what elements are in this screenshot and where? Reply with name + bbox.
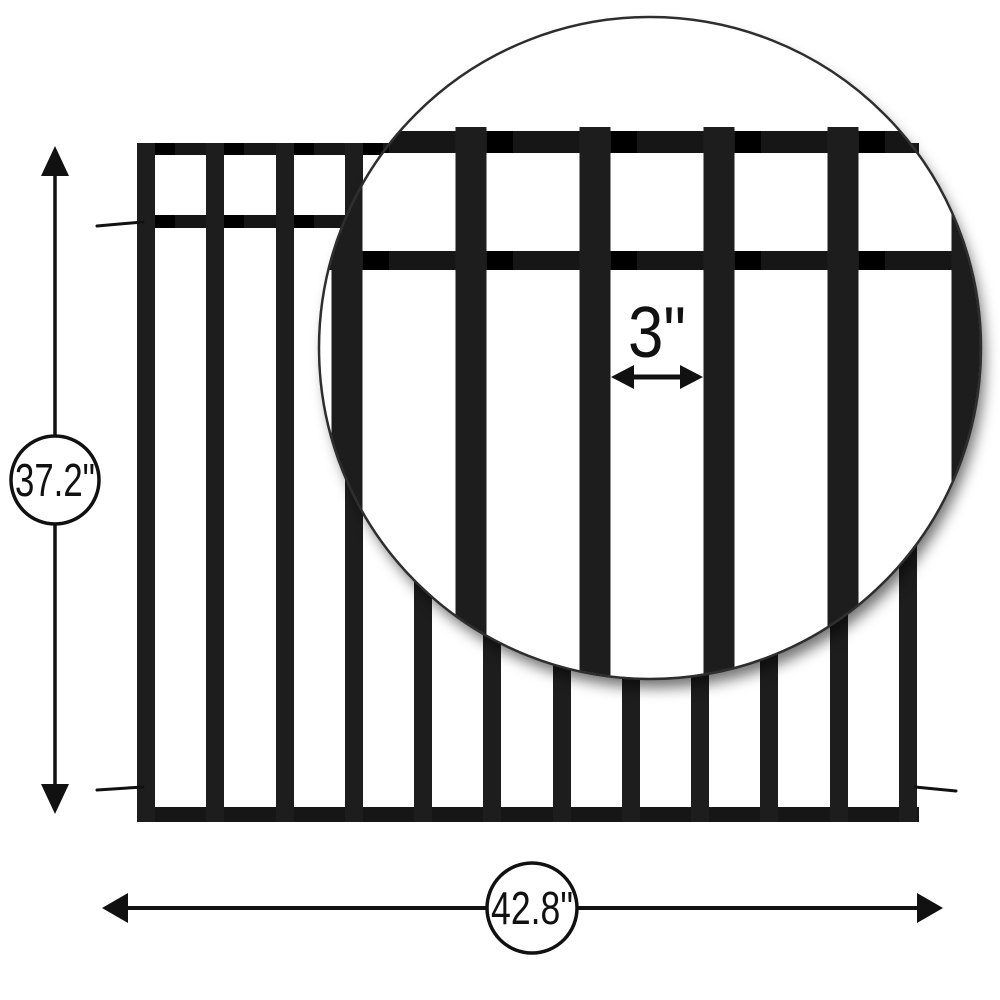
arrow-right-icon (917, 893, 943, 923)
magnified-picket (580, 127, 611, 687)
extension-tick-bottom-left (97, 787, 143, 790)
extension-tick-bottom-right (915, 787, 956, 791)
magnified-picket (952, 127, 983, 687)
height-dimension: 37.2" (11, 146, 99, 814)
width-value: 42.8" (491, 882, 573, 934)
fence-picket (137, 143, 155, 822)
spacing-value: 3" (628, 293, 686, 373)
magnified-picket (828, 127, 859, 687)
extension-tick-top-left (97, 222, 143, 226)
fence-picket (276, 143, 294, 822)
magnified-picket (456, 127, 487, 687)
width-dimension: 42.8" (102, 863, 943, 953)
arrow-left-icon (102, 893, 128, 923)
fence-bottom-rail (137, 807, 919, 822)
fence-picket (206, 143, 224, 822)
diagram-canvas: 3" 37.2" 42.8" (0, 0, 1000, 1000)
arrow-down-icon (41, 784, 69, 814)
fence-dimension-diagram: 3" 37.2" 42.8" (0, 0, 1000, 1000)
arrow-up-icon (41, 146, 69, 176)
magnified-picket (704, 127, 735, 687)
height-value: 37.2" (15, 454, 95, 506)
